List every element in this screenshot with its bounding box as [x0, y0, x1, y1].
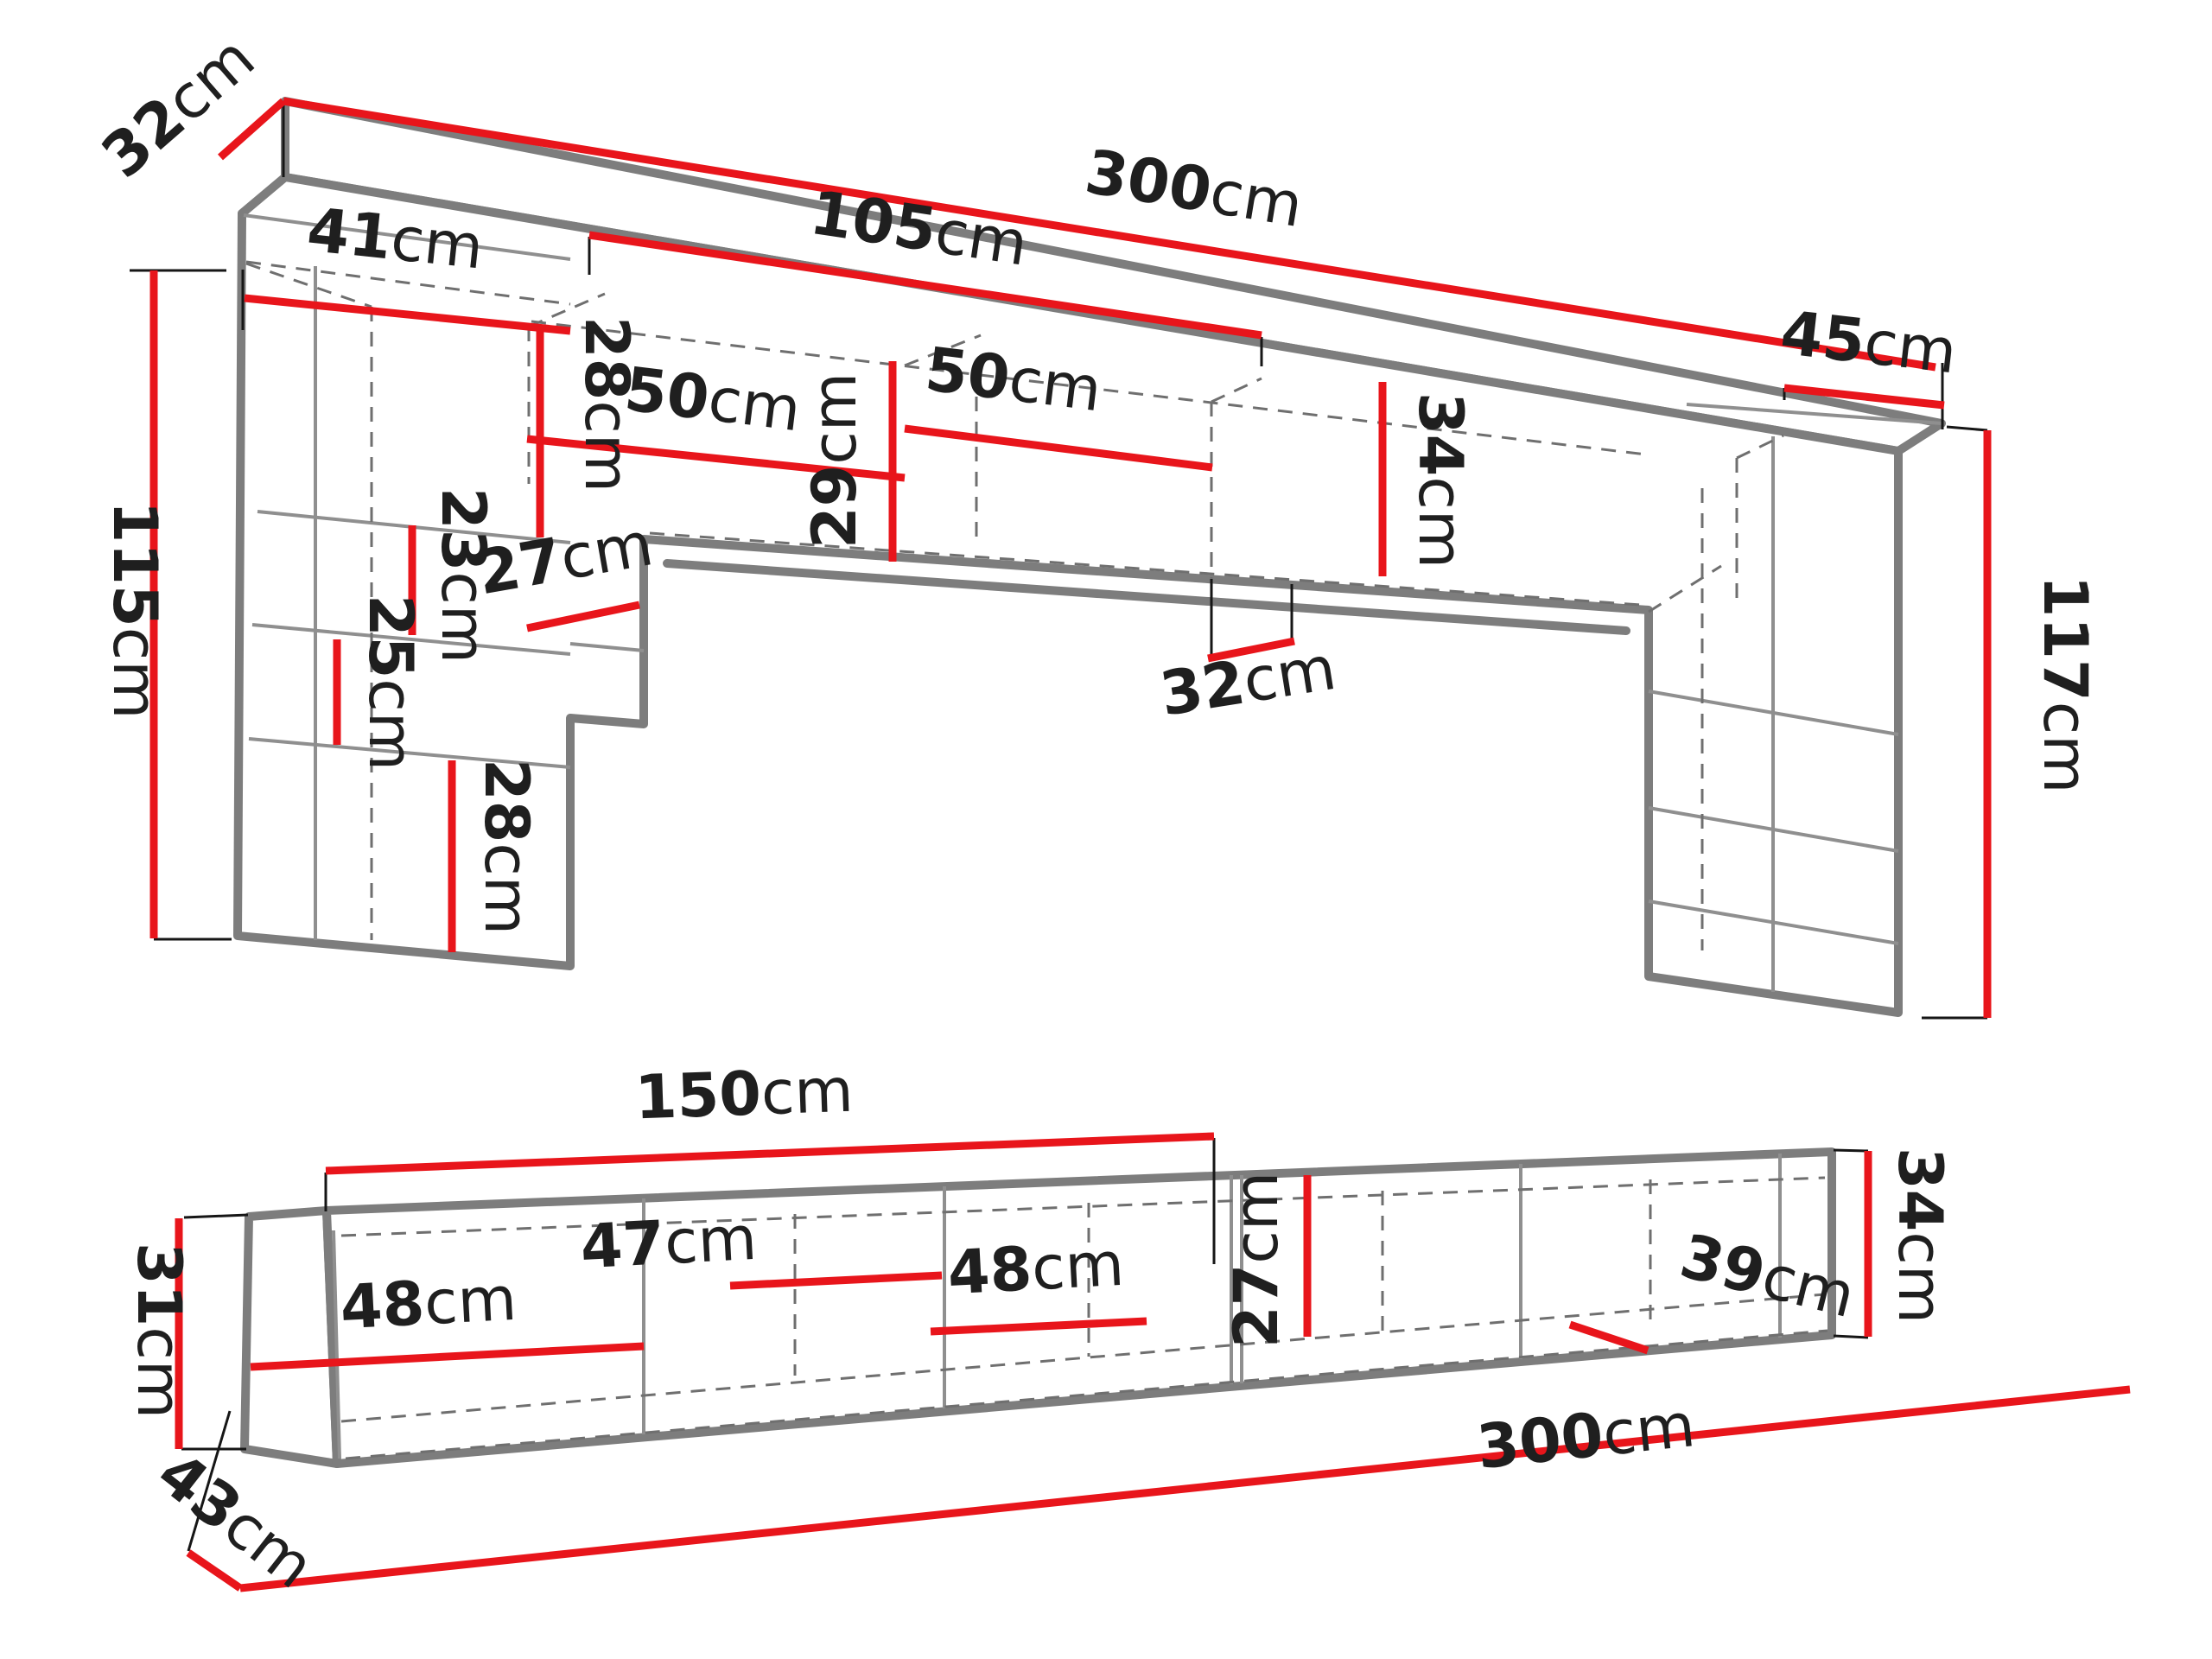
furniture-dimension-diagram: 32cm 300cm 41cm 28cm 50cm 29cm 50cm 34cm… [0, 0, 2212, 1659]
label-left-height: 115cm [99, 501, 170, 720]
dim-line-depth-top [220, 101, 283, 157]
label-depth-b: 43cm [144, 1438, 327, 1602]
label-comp-3: 48cm [946, 1229, 1126, 1309]
label-comp-2: 47cm [579, 1203, 759, 1283]
label-right-col-width: 45cm [1777, 297, 1961, 388]
bottom-unit: 150cm 31cm 48cm 47cm 48cm 27cm 39cm 34cm… [124, 1055, 2130, 1603]
label-shelf-b: 25cm [355, 594, 426, 771]
top-unit: 32cm 300cm 41cm 28cm 50cm 29cm 50cm 34cm… [88, 22, 2101, 1018]
label-right-height-b: 34cm [1885, 1147, 1955, 1324]
diagram-canvas: 32cm 300cm 41cm 28cm 50cm 29cm 50cm 34cm… [0, 0, 2212, 1659]
label-depth-top: 32cm [88, 22, 268, 192]
label-width-total: 300cm [1081, 136, 1308, 241]
label-inner-height-b: 27cm [1221, 1172, 1292, 1348]
label-bridge-height: 29cm [799, 372, 870, 549]
label-total-width: 300cm [1473, 1389, 1698, 1483]
label-shelf-c: 28cm [471, 759, 542, 935]
dim-line-left-width [326, 1136, 1214, 1171]
bottom-unit-side-face [245, 1211, 337, 1464]
label-left-width: 150cm [633, 1055, 855, 1134]
label-inner-height: 34cm [1405, 392, 1476, 569]
label-comp-1: 48cm [339, 1263, 518, 1344]
label-bottom-depth: 32cm [1155, 632, 1340, 730]
label-left-height-b: 31cm [124, 1243, 194, 1419]
label-right-height: 117cm [2030, 575, 2101, 794]
